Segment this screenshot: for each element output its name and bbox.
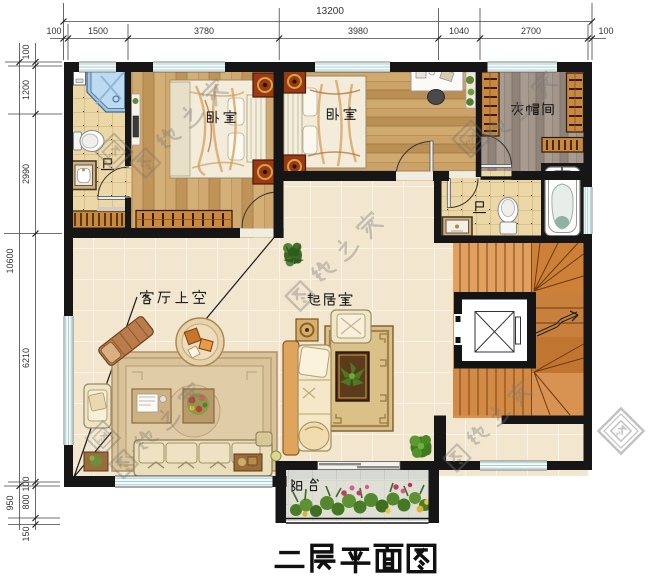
svg-text:100: 100	[46, 26, 61, 36]
svg-text:13200: 13200	[316, 6, 344, 17]
svg-text:2990: 2990	[21, 164, 31, 184]
svg-text:1500: 1500	[88, 26, 108, 36]
svg-text:10600: 10600	[5, 248, 15, 273]
svg-text:3780: 3780	[194, 26, 214, 36]
svg-text:1200: 1200	[21, 80, 31, 100]
svg-text:950: 950	[5, 495, 15, 510]
svg-text:3980: 3980	[348, 26, 368, 36]
svg-text:100: 100	[598, 26, 613, 36]
svg-text:800: 800	[21, 494, 31, 509]
svg-text:150: 150	[21, 526, 31, 541]
svg-text:100: 100	[21, 476, 31, 491]
svg-text:2700: 2700	[521, 26, 541, 36]
svg-text:6210: 6210	[21, 348, 31, 368]
svg-text:1040: 1040	[449, 26, 469, 36]
svg-text:100: 100	[21, 44, 31, 59]
